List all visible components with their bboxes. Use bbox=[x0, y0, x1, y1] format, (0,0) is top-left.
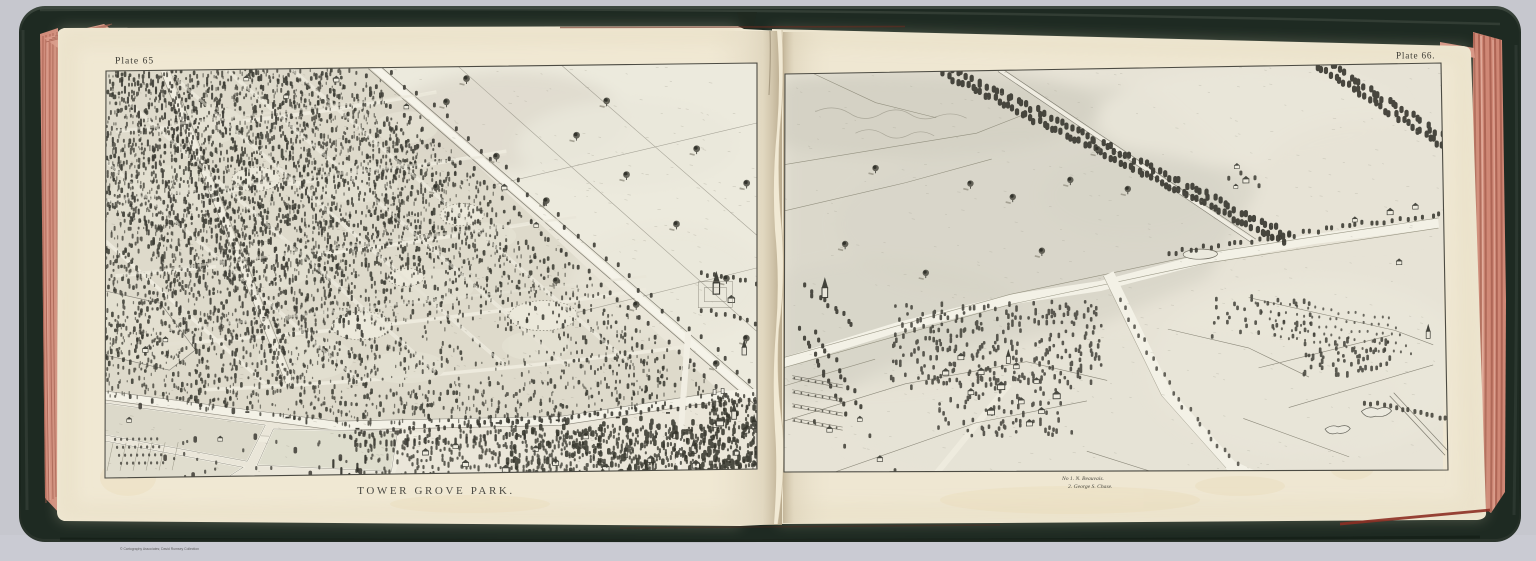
svg-text:TOWER GROVE PARK.: TOWER GROVE PARK. bbox=[357, 485, 515, 497]
svg-text:Plate 65: Plate 65 bbox=[115, 56, 154, 67]
svg-text:2. George S. Chase.: 2. George S. Chase. bbox=[1068, 484, 1113, 490]
svg-text:Plate 66.: Plate 66. bbox=[1396, 51, 1435, 61]
svg-text:© Cartography Associates; Davi: © Cartography Associates; David Rumsey C… bbox=[120, 547, 199, 551]
svg-text:No 1. N. Beauvais.: No 1. N. Beauvais. bbox=[1061, 476, 1104, 482]
